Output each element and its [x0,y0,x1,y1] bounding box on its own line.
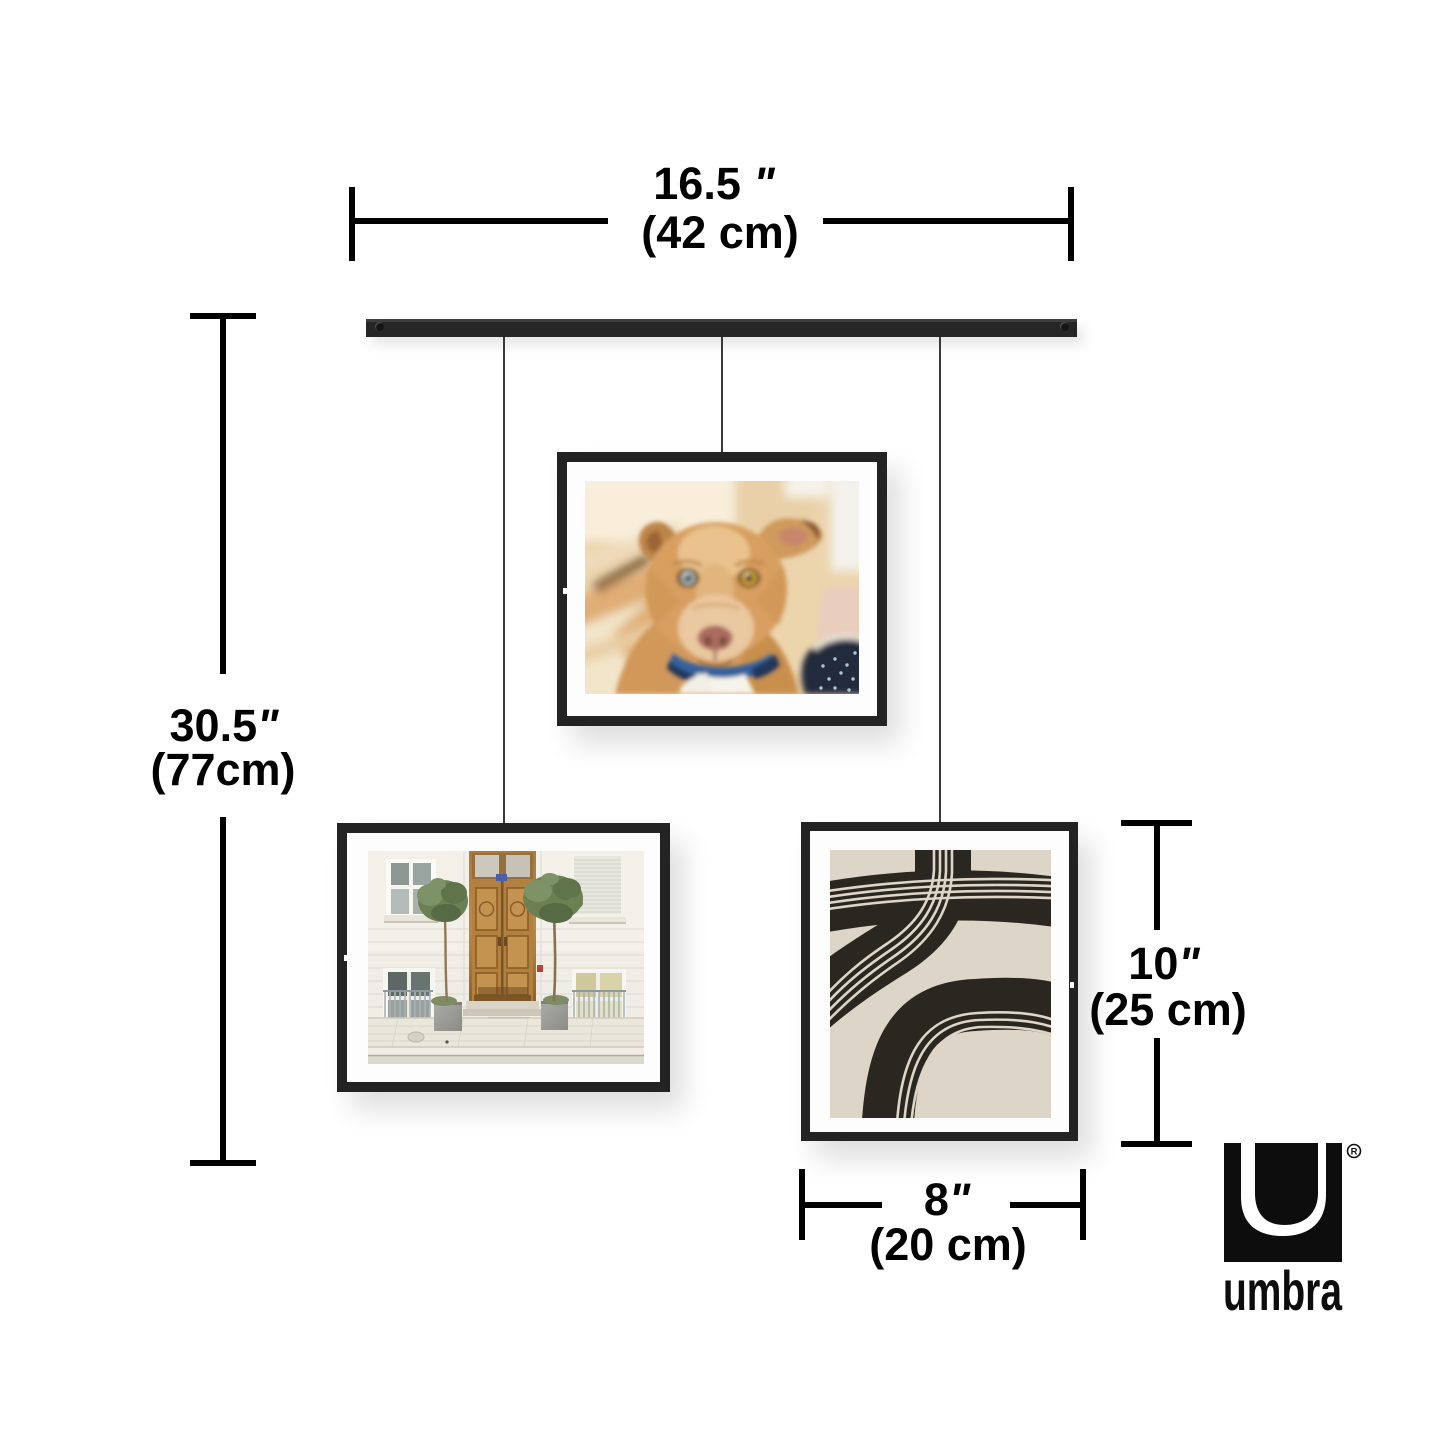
svg-text:umbra: umbra [1223,1259,1343,1315]
svg-text:R: R [1351,1147,1358,1158]
